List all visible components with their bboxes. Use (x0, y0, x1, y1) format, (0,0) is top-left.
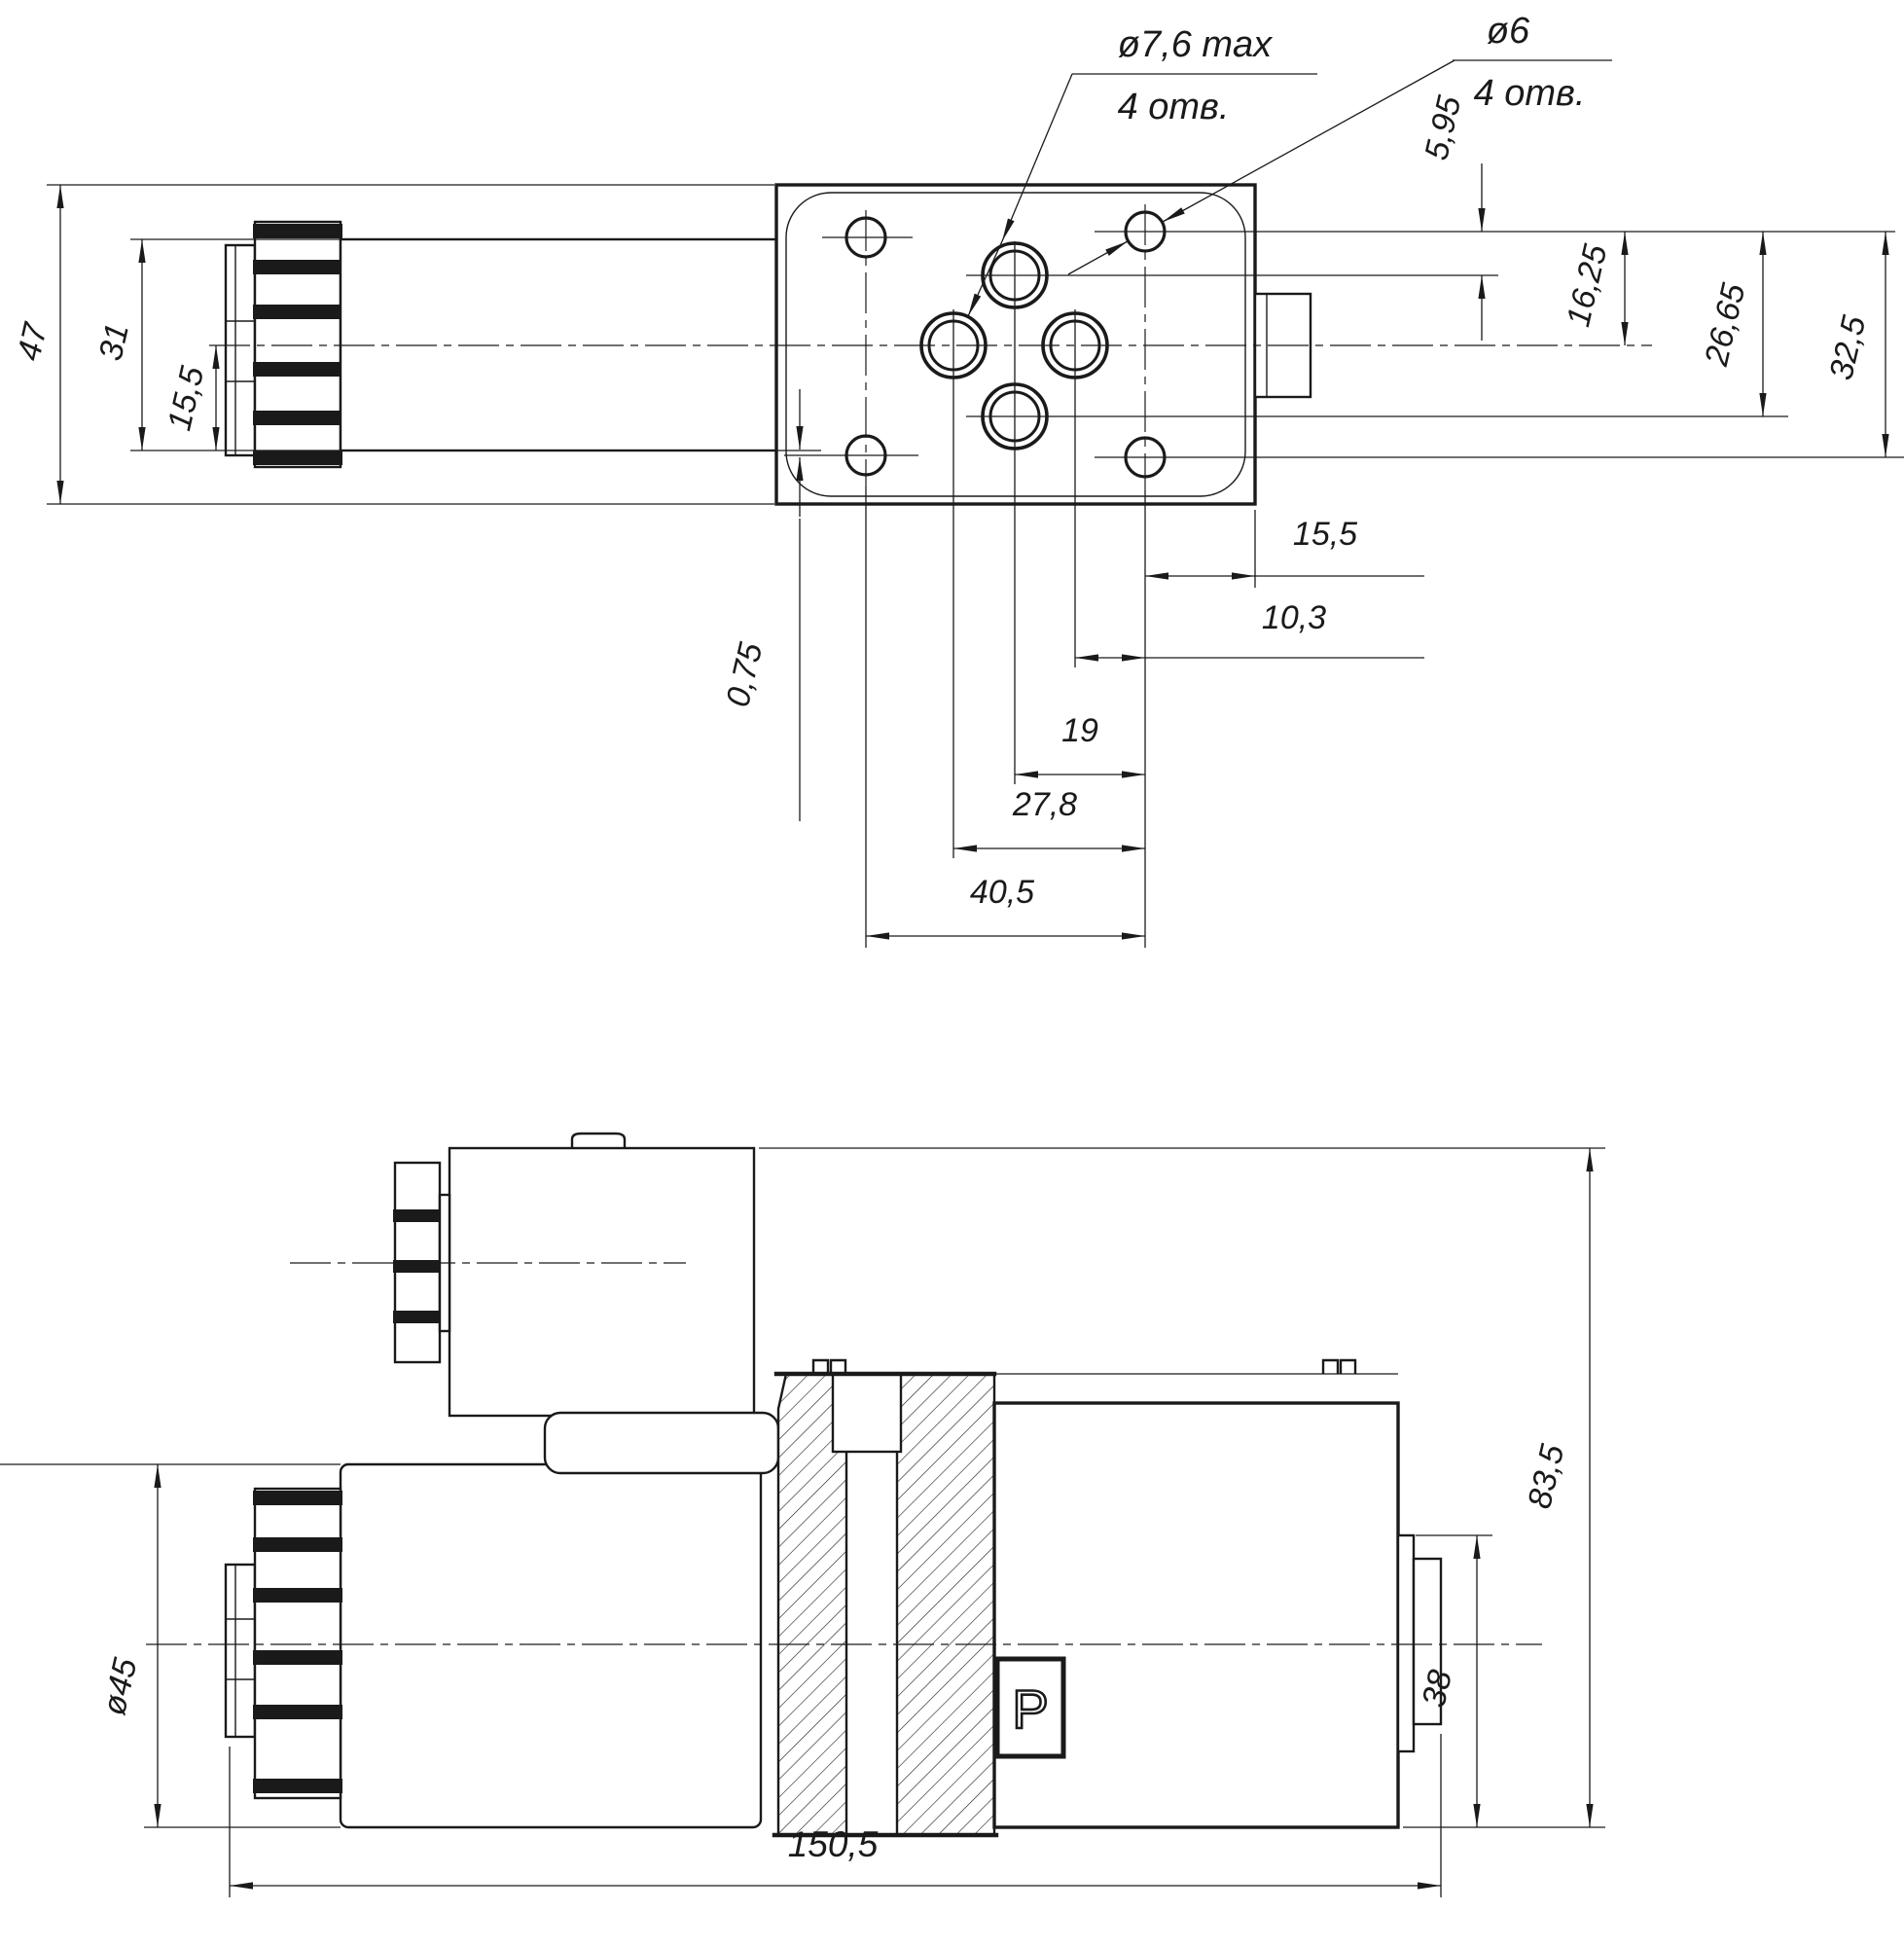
callout-mounting-hole: ø6 4 отв. (1474, 11, 1586, 114)
label-31: 31 (92, 320, 137, 364)
callout-mounting-holes: 4 отв. (1474, 73, 1586, 114)
plug-box (449, 1148, 754, 1416)
label-38: 38 (1416, 1667, 1460, 1711)
callout-counterbore: ø7,6 max 4 отв. (1118, 24, 1275, 127)
side-view-coil (341, 1464, 761, 1827)
fitting-collar (1398, 1535, 1414, 1751)
side-view-valve-body: P (994, 1403, 1398, 1827)
callout-counterbore-holes: 4 отв. (1118, 87, 1230, 127)
label-15-5-left: 15,5 (161, 363, 211, 434)
side-view-port-fitting (1398, 1535, 1441, 1751)
leader-mounting-1 (1163, 60, 1455, 222)
label-150-5: 150,5 (788, 1824, 879, 1864)
label-32-5: 32,5 (1822, 312, 1873, 383)
top-view-connector (226, 222, 342, 467)
label-83-5: 83,5 (1521, 1441, 1571, 1512)
callout-mounting-diameter: ø6 (1487, 11, 1530, 52)
valve-technical-drawing: 47 31 15,5 5,95 16,25 26,65 32,5 0,75 15… (0, 0, 1904, 1946)
side-view-coil-cap (545, 1413, 778, 1473)
label-16-25: 16,25 (1560, 241, 1614, 331)
subplate-right-band (897, 1374, 994, 1835)
top-view: 47 31 15,5 5,95 16,25 26,65 32,5 0,75 15… (0, 11, 1904, 1464)
connector-rib-block (255, 222, 341, 467)
valve-body-outline (994, 1403, 1398, 1827)
label-0-75: 0,75 (719, 639, 770, 710)
plug-screw-bump (572, 1134, 625, 1148)
nut-rib-block (255, 1489, 341, 1798)
port-label-p: P (1012, 1678, 1048, 1740)
side-view-connector-nut (226, 1489, 342, 1798)
label-26-65: 26,65 (1698, 280, 1752, 371)
drawing-sheet: 47 31 15,5 5,95 16,25 26,65 32,5 0,75 15… (0, 0, 1904, 1946)
label-10-3: 10,3 (1262, 599, 1326, 636)
label-47: 47 (11, 319, 55, 364)
label-27-8: 27,8 (1012, 786, 1077, 823)
label-40-5: 40,5 (970, 874, 1034, 911)
label-dia45: ø45 (95, 1655, 144, 1719)
label-5-95: 5,95 (1418, 92, 1468, 163)
label-19: 19 (1061, 712, 1098, 749)
subplate-channel-plug (833, 1374, 901, 1452)
nut-cap (226, 1565, 255, 1737)
label-15-5-right: 15,5 (1293, 516, 1357, 553)
side-view-din-plug (393, 1134, 754, 1416)
callout-counterbore-diameter: ø7,6 max (1118, 24, 1274, 65)
connector-cap (226, 245, 255, 455)
side-view: P ø45 83,5 38 150,5 (95, 1134, 1605, 1897)
